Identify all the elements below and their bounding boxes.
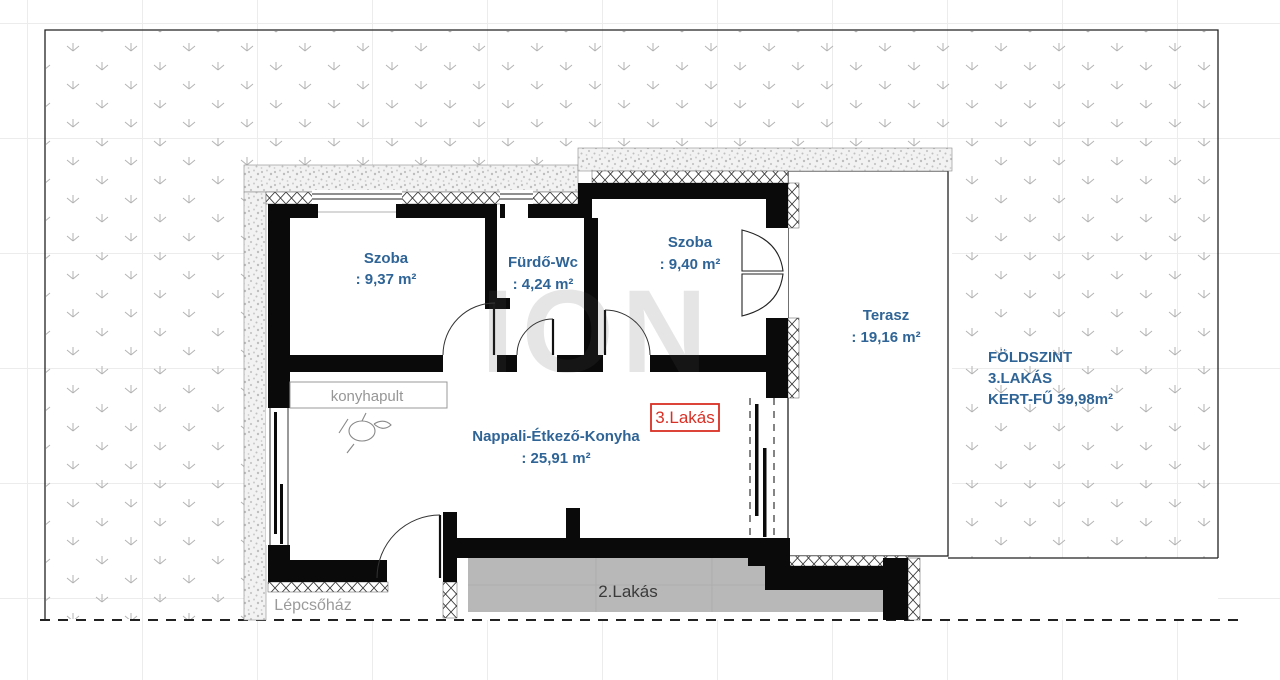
room-szoba2-name: Szoba — [668, 234, 713, 251]
unit2-label: 2.Lakás — [598, 582, 658, 601]
site-info-line1: FÖLDSZINT — [988, 349, 1072, 366]
terrace-outline — [788, 171, 948, 556]
site-info-line2: 3.LAKÁS — [988, 370, 1052, 387]
room-terrace-area: : 19,16 m² — [851, 329, 920, 346]
floor-plan-canvas: ION Szoba : 9,37 m² Fürdő-Wc : 4,24 m² S… — [0, 0, 1280, 680]
room-bathroom-area: : 4,24 m² — [513, 276, 574, 293]
site-info-line3: KERT-FŰ 39,98m² — [988, 390, 1113, 408]
sliding-window-left — [266, 408, 292, 545]
room-terrace-name: Terasz — [863, 307, 909, 324]
room-szoba1-name: Szoba — [364, 250, 409, 267]
unit-badge: 3.Lakás — [651, 404, 719, 431]
room-szoba1-area: : 9,37 m² — [356, 271, 417, 288]
window-bathroom — [500, 190, 533, 218]
room-szoba2-area: : 9,40 m² — [660, 256, 721, 273]
window-szoba1 — [312, 190, 402, 218]
unit-badge-label: 3.Lakás — [655, 408, 715, 427]
room-living-area: : 25,91 m² — [521, 450, 590, 467]
room-living-name: Nappali-Étkező-Konyha — [472, 428, 640, 445]
staircase-label: Lépcsőház — [274, 597, 351, 614]
room-bathroom-name: Fürdő-Wc — [508, 254, 578, 271]
kitchen-counter-label: konyhapult — [331, 388, 404, 405]
